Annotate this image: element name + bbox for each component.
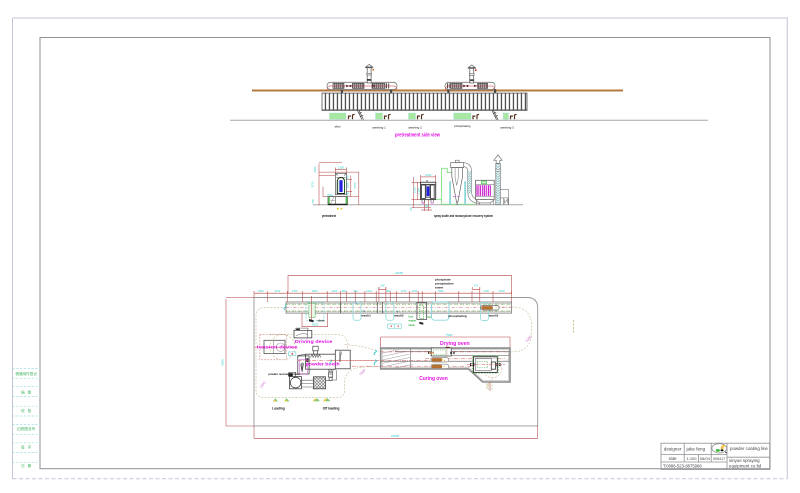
svg-text:170: 170 [474, 283, 479, 287]
svg-text:7500: 7500 [446, 333, 453, 337]
svg-text:900: 900 [353, 289, 358, 293]
svg-text:1100: 1100 [338, 166, 344, 170]
svg-text:5500: 5500 [221, 359, 225, 366]
svg-text:3000: 3000 [312, 322, 319, 326]
svg-text:tank: tank [409, 323, 416, 327]
svg-text:washing 2: washing 2 [408, 126, 422, 130]
svg-text:phosphating: phosphating [454, 124, 471, 128]
svg-text:1430: 1430 [331, 289, 337, 293]
svg-text:2750: 2750 [353, 182, 357, 189]
svg-text:日 期: 日 期 [21, 463, 32, 468]
svg-text:005417: 005417 [713, 457, 725, 461]
svg-text:Off loading: Off loading [323, 407, 340, 411]
svg-text:1441: 1441 [366, 289, 372, 293]
svg-text:tower: tower [435, 286, 444, 290]
svg-text:wash2: wash2 [393, 313, 404, 317]
svg-text:1700: 1700 [292, 289, 298, 293]
svg-text:powder recovery system: powder recovery system [268, 372, 300, 376]
svg-text:900: 900 [386, 289, 391, 293]
svg-text:签 字: 签 字 [21, 445, 32, 450]
svg-text:skim: skim [335, 125, 342, 129]
svg-text:Driving device: Driving device [295, 339, 333, 344]
svg-text:1706: 1706 [401, 289, 407, 293]
svg-text:2273: 2273 [275, 289, 281, 293]
svg-text:2500: 2500 [486, 382, 490, 389]
svg-text:25: 25 [409, 207, 413, 211]
svg-text:1500: 1500 [425, 173, 432, 177]
svg-text:tension device: tension device [257, 345, 298, 351]
svg-text:equipment co.ltd: equipment co.ltd [729, 464, 762, 469]
svg-text:描 图: 描 图 [21, 390, 32, 395]
svg-text:washing 1: washing 1 [372, 126, 386, 130]
svg-text:Loading: Loading [272, 407, 284, 411]
svg-text:jake feng: jake feng [686, 447, 706, 452]
svg-text:750x: 750x [327, 193, 334, 197]
svg-text:2046: 2046 [499, 289, 505, 293]
svg-text:450: 450 [424, 204, 429, 208]
svg-text:1:100: 1:100 [686, 456, 697, 461]
svg-text:pretreatment: pretreatment [322, 214, 337, 218]
svg-text:1700: 1700 [412, 289, 418, 293]
svg-text:wash1: wash1 [360, 313, 371, 317]
svg-text:washing 3: washing 3 [500, 126, 514, 130]
svg-text:06/04: 06/04 [700, 456, 711, 461]
svg-text:wash3: wash3 [488, 314, 499, 318]
svg-text:1700: 1700 [483, 289, 489, 293]
svg-text:3750: 3750 [311, 181, 315, 188]
svg-text:rate: rate [669, 456, 677, 461]
svg-text:skim: skim [317, 319, 324, 323]
svg-text:spray booth and monocyclone re: spray booth and monocyclone recovery sys… [434, 214, 493, 218]
svg-text:T:0086-523-8875966: T:0086-523-8875966 [663, 463, 702, 468]
svg-text:借通用件登记: 借通用件登记 [15, 371, 37, 376]
svg-text:1500: 1500 [258, 289, 264, 293]
svg-text:powder booth: powder booth [306, 361, 340, 366]
svg-text:1100: 1100 [416, 188, 420, 194]
svg-text:890: 890 [342, 289, 347, 293]
svg-text:3000: 3000 [312, 289, 318, 293]
svg-text:Drying oven: Drying oven [440, 341, 470, 347]
svg-text:pretreatment side view: pretreatment side view [395, 133, 441, 139]
svg-text:24050: 24050 [395, 271, 404, 275]
svg-text:phosphating: phosphating [448, 314, 467, 318]
svg-text:2000: 2000 [313, 166, 317, 173]
svg-text:148: 148 [380, 283, 385, 287]
svg-text:designer: designer [664, 447, 682, 452]
svg-text:powder coating line: powder coating line [730, 446, 768, 451]
svg-text:校 核: 校 核 [21, 408, 32, 413]
svg-text:xinyue spraying: xinyue spraying [729, 458, 760, 463]
svg-text:750: 750 [311, 199, 315, 204]
svg-text:旧底图总号: 旧底图总号 [17, 426, 35, 431]
svg-text:22050: 22050 [391, 434, 400, 438]
svg-text:Curing oven: Curing oven [419, 376, 448, 382]
